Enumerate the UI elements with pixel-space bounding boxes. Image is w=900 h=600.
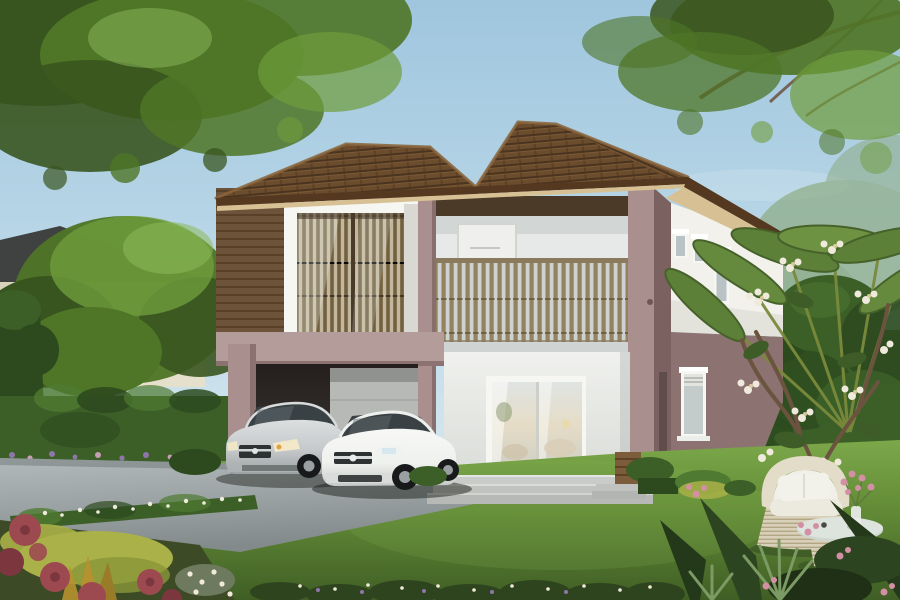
side-window <box>677 367 710 441</box>
box-window <box>284 200 418 346</box>
balcony-railing <box>436 258 632 344</box>
balcony <box>432 196 634 362</box>
scene-canvas <box>0 0 900 600</box>
house-rendering-image <box>0 0 900 600</box>
corner-column <box>628 186 671 496</box>
